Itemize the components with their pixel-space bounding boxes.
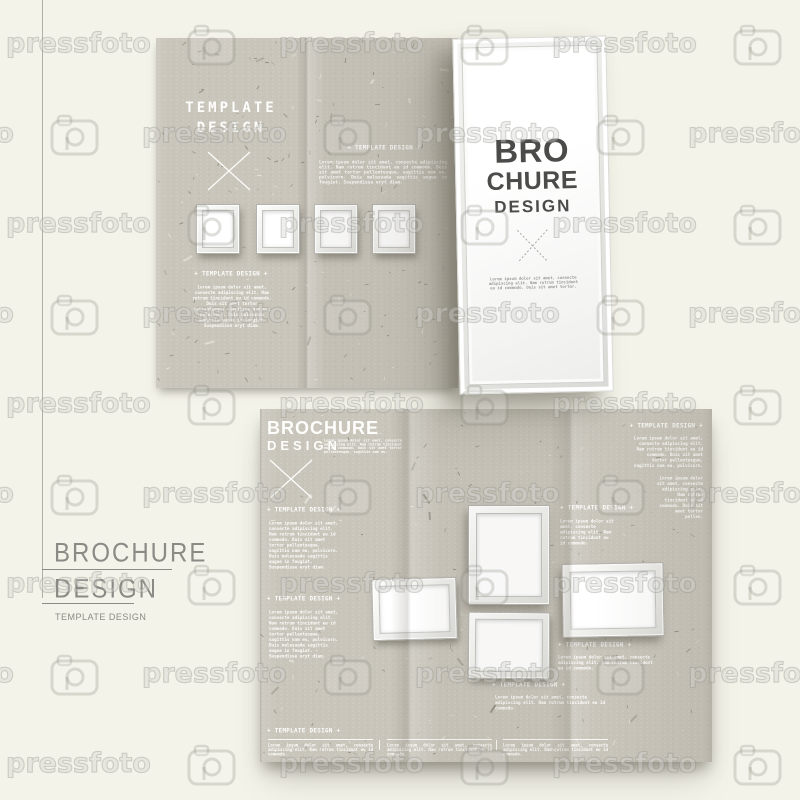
paper-fiber-speck — [476, 609, 477, 610]
paper-fiber-speck — [631, 525, 635, 526]
watermark-camera-icon — [49, 113, 101, 161]
paper-fiber-speck — [341, 577, 343, 578]
paper-fiber-speck — [288, 154, 290, 158]
paper-fiber-speck — [292, 676, 294, 680]
paper-fiber-speck — [690, 534, 695, 537]
paper-fiber-speck — [314, 379, 318, 380]
paper-fiber-speck — [541, 496, 542, 497]
paper-fiber-speck — [451, 649, 453, 652]
paper-fiber-speck — [184, 255, 193, 261]
paper-fiber-speck — [434, 124, 436, 127]
paper-fiber-speck — [312, 47, 316, 50]
paper-fiber-speck — [194, 340, 197, 344]
paper-fiber-speck — [378, 154, 379, 157]
watermark-text: pressfoto — [688, 118, 800, 149]
paper-fiber-speck — [576, 687, 578, 691]
paper-fiber-speck — [322, 272, 324, 273]
paper-fiber-speck — [179, 223, 183, 226]
paper-fiber-speck — [368, 211, 370, 212]
paper-fiber-speck — [370, 80, 374, 85]
paper-fiber-speck — [475, 446, 480, 448]
paper-fiber-speck — [443, 266, 445, 269]
paper-fiber-speck — [397, 99, 399, 101]
watermark-text: pressfoto — [688, 298, 800, 329]
paper-fiber-speck — [429, 512, 431, 520]
paper-fiber-speck — [166, 367, 170, 369]
photo-frame-mat — [378, 210, 410, 248]
paper-fiber-speck — [403, 59, 405, 61]
paper-fiber-speck — [179, 320, 180, 321]
paper-fiber-speck — [317, 99, 322, 102]
paper-fiber-speck — [188, 191, 191, 194]
watermark-camera-icon — [49, 473, 101, 521]
paper-fiber-speck — [257, 86, 260, 90]
paper-fiber-speck — [321, 415, 324, 416]
paper-fiber-speck — [395, 493, 396, 494]
paper-fiber-speck — [201, 89, 205, 91]
paper-fiber-speck — [255, 364, 257, 366]
caption-title-line2: DESIGN — [54, 574, 158, 605]
paper-fiber-speck — [409, 98, 411, 103]
paper-fiber-speck — [461, 425, 463, 427]
paper-fiber-speck — [271, 62, 275, 65]
paper-fiber-speck — [381, 187, 382, 192]
paper-fiber-speck — [340, 580, 342, 582]
paper-fiber-speck — [494, 500, 495, 502]
photo-frame — [561, 562, 664, 638]
x-mark-dashed-icon — [515, 228, 550, 265]
paper-fiber-speck — [433, 319, 435, 321]
paper-fiber-speck — [451, 115, 452, 118]
paper-fiber-speck — [468, 484, 472, 487]
watermark-text: pressfoto — [0, 118, 14, 149]
paper-fiber-speck — [410, 506, 413, 507]
paper-fiber-speck — [315, 689, 318, 692]
paper-fiber-speck — [361, 656, 364, 659]
photo-frame — [468, 505, 550, 605]
paper-fiber-speck — [245, 377, 248, 382]
paper-fiber-speck — [393, 51, 395, 53]
paper-fiber-speck — [181, 202, 183, 204]
paper-fiber-speck — [273, 709, 276, 713]
paper-fiber-speck — [290, 184, 293, 187]
paper-fiber-speck — [363, 226, 365, 230]
paper-fiber-speck — [571, 549, 573, 551]
bottom-brochure-sheet: BROCHURE DESIGN Lorem ipsum dolor sit am… — [260, 409, 712, 762]
paper-fiber-speck — [350, 377, 353, 380]
paper-fiber-speck — [373, 72, 374, 75]
watermark-camera-icon — [186, 743, 238, 791]
paper-fiber-speck — [561, 456, 563, 459]
paper-fiber-speck — [242, 247, 246, 249]
paper-fiber-speck — [421, 330, 423, 335]
paper-fiber-speck — [595, 558, 597, 560]
paper-fiber-speck — [365, 284, 369, 285]
paper-fiber-speck — [457, 657, 464, 665]
caption-title-line1: BROCHURE — [54, 538, 207, 569]
paper-fiber-speck — [549, 454, 551, 456]
paper-fiber-speck — [552, 561, 555, 563]
paper-fiber-speck — [292, 287, 295, 290]
paper-fiber-speck — [516, 486, 518, 490]
paper-fiber-speck — [630, 715, 638, 723]
paper-fiber-speck — [309, 151, 310, 155]
paper-fiber-speck — [457, 471, 460, 475]
paper-fiber-speck — [385, 122, 387, 127]
paper-fiber-speck — [254, 169, 258, 170]
paper-fiber-speck — [257, 57, 265, 62]
paper-fiber-speck — [273, 185, 278, 188]
paper-fiber-speck — [265, 61, 269, 62]
paper-fiber-speck — [415, 524, 417, 526]
paper-fiber-speck — [456, 497, 458, 502]
paper-fiber-speck — [429, 362, 431, 364]
paper-fiber-speck — [687, 649, 691, 653]
paper-fiber-speck — [412, 43, 414, 48]
paper-fiber-speck — [344, 354, 347, 357]
paper-fiber-speck — [444, 528, 446, 532]
paper-fiber-speck — [393, 184, 397, 188]
cover-title-word2: CHURE — [468, 167, 597, 197]
photo-frame-mat — [262, 210, 294, 248]
paper-fiber-speck — [361, 534, 363, 535]
paper-fiber-speck — [258, 377, 261, 381]
paper-fiber-speck — [692, 628, 694, 630]
paper-fiber-speck — [682, 730, 683, 731]
paper-fiber-speck — [292, 415, 294, 417]
photo-frame-mat — [320, 210, 352, 248]
paper-fiber-speck — [263, 752, 265, 754]
paper-fiber-speck — [540, 440, 542, 442]
title-line: TEMPLATE — [166, 98, 296, 118]
watermark-camera-icon — [732, 203, 784, 251]
paper-fiber-speck — [305, 284, 309, 286]
paper-fiber-speck — [315, 261, 317, 262]
paper-fiber-speck — [257, 175, 262, 176]
watermark-text: pressfoto — [6, 28, 151, 59]
paper-fiber-speck — [676, 671, 679, 674]
paper-fiber-speck — [450, 644, 451, 649]
paper-fiber-speck — [374, 646, 376, 649]
paper-fiber-speck — [192, 151, 196, 154]
cover-title-word1: BRO — [467, 132, 596, 170]
paper-fiber-speck — [307, 336, 311, 345]
paper-fiber-speck — [197, 361, 200, 363]
x-mark-icon — [206, 150, 252, 192]
paper-fiber-speck — [318, 681, 320, 683]
cover-panel: BRO CHURE DESIGN Lorem ipsum dolor sit a… — [452, 35, 613, 394]
caption-underline-1 — [42, 569, 172, 570]
footer-column-2: Lorem ipsum dolor sit amet, consecte adi… — [387, 739, 492, 742]
paper-fiber-speck — [626, 705, 627, 708]
paper-fiber-speck — [198, 51, 202, 53]
paper-fiber-speck — [282, 158, 285, 161]
cover-title-word3: DESIGN — [469, 194, 597, 221]
paper-fiber-speck — [460, 611, 463, 615]
paper-fiber-speck — [275, 42, 277, 44]
paper-fiber-speck — [550, 545, 554, 546]
paper-fiber-speck — [438, 234, 440, 236]
paper-fiber-speck — [373, 576, 375, 578]
footer-separator — [496, 740, 497, 750]
paper-fiber-speck — [384, 314, 386, 316]
cover-note: Lorem ipsum dolor sit amet, consecte adi… — [488, 275, 578, 277]
paper-fiber-speck — [305, 311, 306, 312]
vertical-divider-line — [42, 0, 43, 598]
paper-fiber-speck — [245, 145, 249, 149]
top-brochure-sheet: TEMPLATE DESIGN + TEMPLATE DESIGN + Lore… — [156, 38, 458, 388]
footer-column-1: Lorem ipsum dolor sit amet, consecte adi… — [268, 739, 373, 742]
paper-fiber-speck — [447, 91, 449, 93]
paper-fiber-speck — [196, 173, 198, 175]
paper-fiber-speck — [382, 669, 385, 671]
paper-fiber-speck — [300, 325, 302, 327]
paper-fiber-speck — [273, 193, 274, 195]
paper-fiber-speck — [402, 270, 405, 271]
paper-fiber-speck — [267, 157, 271, 160]
paper-fiber-speck — [328, 151, 331, 155]
paper-fiber-speck — [696, 640, 700, 643]
paper-fiber-speck — [272, 331, 277, 334]
paper-fiber-speck — [359, 342, 361, 344]
x-mark-icon — [268, 458, 314, 500]
photo-frame — [196, 204, 240, 254]
paper-fiber-speck — [287, 321, 289, 324]
paper-fiber-speck — [424, 284, 427, 285]
paper-fiber-speck — [557, 715, 561, 718]
caption-subtitle: TEMPLATE DESIGN — [55, 612, 146, 622]
paper-fiber-speck — [441, 81, 443, 83]
paper-fiber-speck — [645, 490, 646, 491]
paper-fiber-speck — [449, 714, 453, 716]
paper-fiber-speck — [643, 678, 644, 679]
paper-fiber-speck — [199, 89, 203, 92]
paper-fiber-speck — [622, 532, 625, 536]
paper-fiber-speck — [578, 552, 580, 554]
paper-fiber-speck — [333, 455, 335, 457]
paper-fiber-speck — [301, 217, 303, 221]
paper-fiber-speck — [428, 657, 433, 659]
paper-fiber-speck — [423, 494, 431, 504]
paper-fiber-speck — [274, 160, 278, 162]
paper-fiber-speck — [193, 177, 195, 181]
paper-fiber-speck — [274, 676, 275, 677]
paper-fiber-speck — [363, 368, 366, 372]
paper-fiber-speck — [474, 716, 477, 717]
paper-fiber-speck — [417, 732, 419, 734]
paper-fiber-speck — [602, 549, 604, 551]
paper-fiber-speck — [346, 280, 349, 282]
watermark-camera-icon — [732, 23, 784, 71]
paper-fiber-speck — [416, 456, 419, 459]
paper-fiber-speck — [171, 332, 175, 335]
paper-fiber-speck — [357, 598, 358, 599]
paper-fiber-speck — [173, 328, 175, 330]
paper-fiber-speck — [423, 115, 425, 117]
paper-fiber-speck — [182, 42, 186, 46]
paper-fiber-speck — [332, 103, 334, 106]
photo-frame — [372, 204, 416, 254]
paper-fiber-speck — [382, 87, 383, 88]
watermark-text: pressfoto — [6, 388, 151, 419]
paper-fiber-speck — [205, 340, 215, 344]
paper-fiber-speck — [281, 707, 283, 709]
photo-frame — [468, 612, 551, 680]
paper-fiber-speck — [170, 355, 174, 357]
paper-fiber-speck — [349, 293, 351, 296]
paper-fiber-speck — [300, 161, 303, 163]
bottom-title: BROCHURE — [267, 418, 379, 439]
paper-fiber-speck — [392, 366, 394, 368]
paper-fiber-speck — [382, 191, 385, 194]
paper-fiber-speck — [157, 322, 160, 326]
paper-fiber-speck — [677, 531, 678, 532]
photo-frame — [314, 204, 358, 254]
paper-fiber-speck — [192, 64, 194, 65]
paper-fiber-speck — [521, 472, 522, 474]
paper-fiber-speck — [694, 677, 697, 682]
paper-fiber-speck — [613, 740, 616, 745]
paper-fiber-speck — [581, 447, 584, 451]
paper-fiber-speck — [362, 40, 364, 43]
watermark-camera-icon — [49, 293, 101, 341]
paper-fiber-speck — [558, 446, 559, 448]
paper-fiber-speck — [337, 122, 340, 125]
paper-fiber-speck — [311, 723, 313, 726]
paper-fiber-speck — [629, 719, 630, 722]
paper-fiber-speck — [690, 710, 692, 713]
paper-fiber-speck — [345, 58, 346, 63]
paper-fiber-speck — [183, 288, 186, 292]
paper-fiber-speck — [434, 341, 437, 343]
paper-fiber-speck — [249, 58, 250, 60]
top-left-panel-title: TEMPLATE DESIGN — [166, 98, 296, 138]
watermark-camera-icon — [732, 563, 784, 611]
paper-fiber-speck — [384, 377, 385, 380]
cover-title: BRO CHURE DESIGN — [467, 132, 597, 221]
paper-fiber-speck — [675, 631, 679, 632]
paper-fiber-speck — [314, 322, 315, 323]
watermark-camera-icon — [732, 383, 784, 431]
paper-fiber-speck — [254, 58, 257, 59]
paper-fiber-speck — [460, 628, 464, 630]
paper-fiber-speck — [651, 512, 652, 514]
paper-fiber-speck — [455, 467, 458, 469]
paper-fiber-speck — [216, 369, 218, 373]
watermark-text: pressfoto — [0, 478, 14, 509]
paper-fiber-speck — [435, 354, 437, 355]
paper-fiber-speck — [387, 335, 389, 337]
paper-fiber-speck — [271, 686, 279, 694]
paper-fiber-speck — [256, 189, 258, 191]
paper-fiber-speck — [186, 336, 189, 339]
paper-fiber-speck — [225, 353, 230, 355]
watermark-camera-icon — [732, 743, 784, 791]
paper-fiber-speck — [330, 113, 332, 118]
cover-art-area: BRO CHURE DESIGN Lorem ipsum dolor sit a… — [466, 49, 601, 382]
watermark-camera-icon — [49, 653, 101, 701]
paper-fiber-speck — [517, 727, 519, 729]
paper-fiber-speck — [464, 412, 466, 413]
photo-frame-mat — [475, 619, 543, 673]
paper-fiber-speck — [673, 529, 675, 530]
paper-fiber-speck — [440, 69, 449, 72]
paper-fiber-speck — [389, 272, 391, 274]
paper-fiber-speck — [168, 233, 172, 238]
paper-fiber-speck — [364, 311, 366, 312]
paper-fiber-speck — [157, 378, 160, 381]
footer-separator — [379, 740, 380, 750]
paper-fiber-speck — [453, 569, 456, 570]
caption-underline-2 — [42, 603, 134, 604]
paper-fiber-speck — [416, 316, 419, 320]
photo-frame-mat — [570, 570, 657, 629]
paper-fiber-speck — [534, 501, 536, 504]
paper-fiber-speck — [246, 279, 249, 281]
paper-fiber-speck — [162, 132, 164, 134]
watermark-text: pressfoto — [6, 208, 151, 239]
paper-fiber-speck — [424, 443, 427, 447]
photo-frame-mat — [202, 210, 234, 248]
paper-fiber-speck — [605, 637, 607, 640]
watermark-camera-icon — [186, 383, 238, 431]
paper-fiber-speck — [445, 228, 448, 230]
stock-photo-canvas: BROCHURE DESIGN TEMPLATE DESIGN TEMPLATE… — [0, 0, 800, 800]
paper-fiber-speck — [429, 720, 431, 721]
paper-fiber-speck — [158, 180, 160, 182]
paper-fiber-speck — [316, 115, 319, 117]
paper-fiber-speck — [260, 633, 263, 636]
paper-fiber-speck — [315, 119, 317, 123]
title-line: DESIGN — [166, 118, 296, 138]
watermark-text: pressfoto — [0, 298, 14, 329]
paper-fiber-speck — [292, 54, 296, 57]
paper-fiber-speck — [614, 480, 616, 482]
paper-fiber-speck — [411, 462, 416, 471]
paper-fiber-speck — [387, 459, 388, 460]
paper-fiber-speck — [338, 298, 340, 302]
paper-fiber-speck — [193, 267, 194, 268]
paper-fiber-speck — [319, 74, 321, 79]
paper-fiber-speck — [418, 281, 421, 283]
photo-frame — [256, 204, 300, 254]
photo-frame-mat — [378, 584, 450, 634]
watermark-text: pressfoto — [6, 748, 151, 779]
paper-fiber-speck — [375, 104, 380, 105]
paper-fiber-speck — [405, 658, 408, 660]
paper-fiber-speck — [582, 718, 585, 722]
watermark-camera-icon — [186, 563, 238, 611]
paper-fiber-speck — [215, 53, 220, 56]
photo-frame-mat — [476, 513, 542, 597]
footer-column-3: Lorem ipsum dolor sit amet, consecte adi… — [503, 739, 608, 742]
paper-fiber-speck — [381, 325, 383, 327]
photo-frame — [371, 577, 458, 641]
paper-fiber-speck — [328, 330, 330, 332]
paper-fiber-speck — [638, 490, 639, 491]
watermark-text: pressfoto — [0, 658, 14, 689]
paper-fiber-speck — [289, 660, 295, 663]
paper-fiber-speck — [319, 130, 320, 131]
